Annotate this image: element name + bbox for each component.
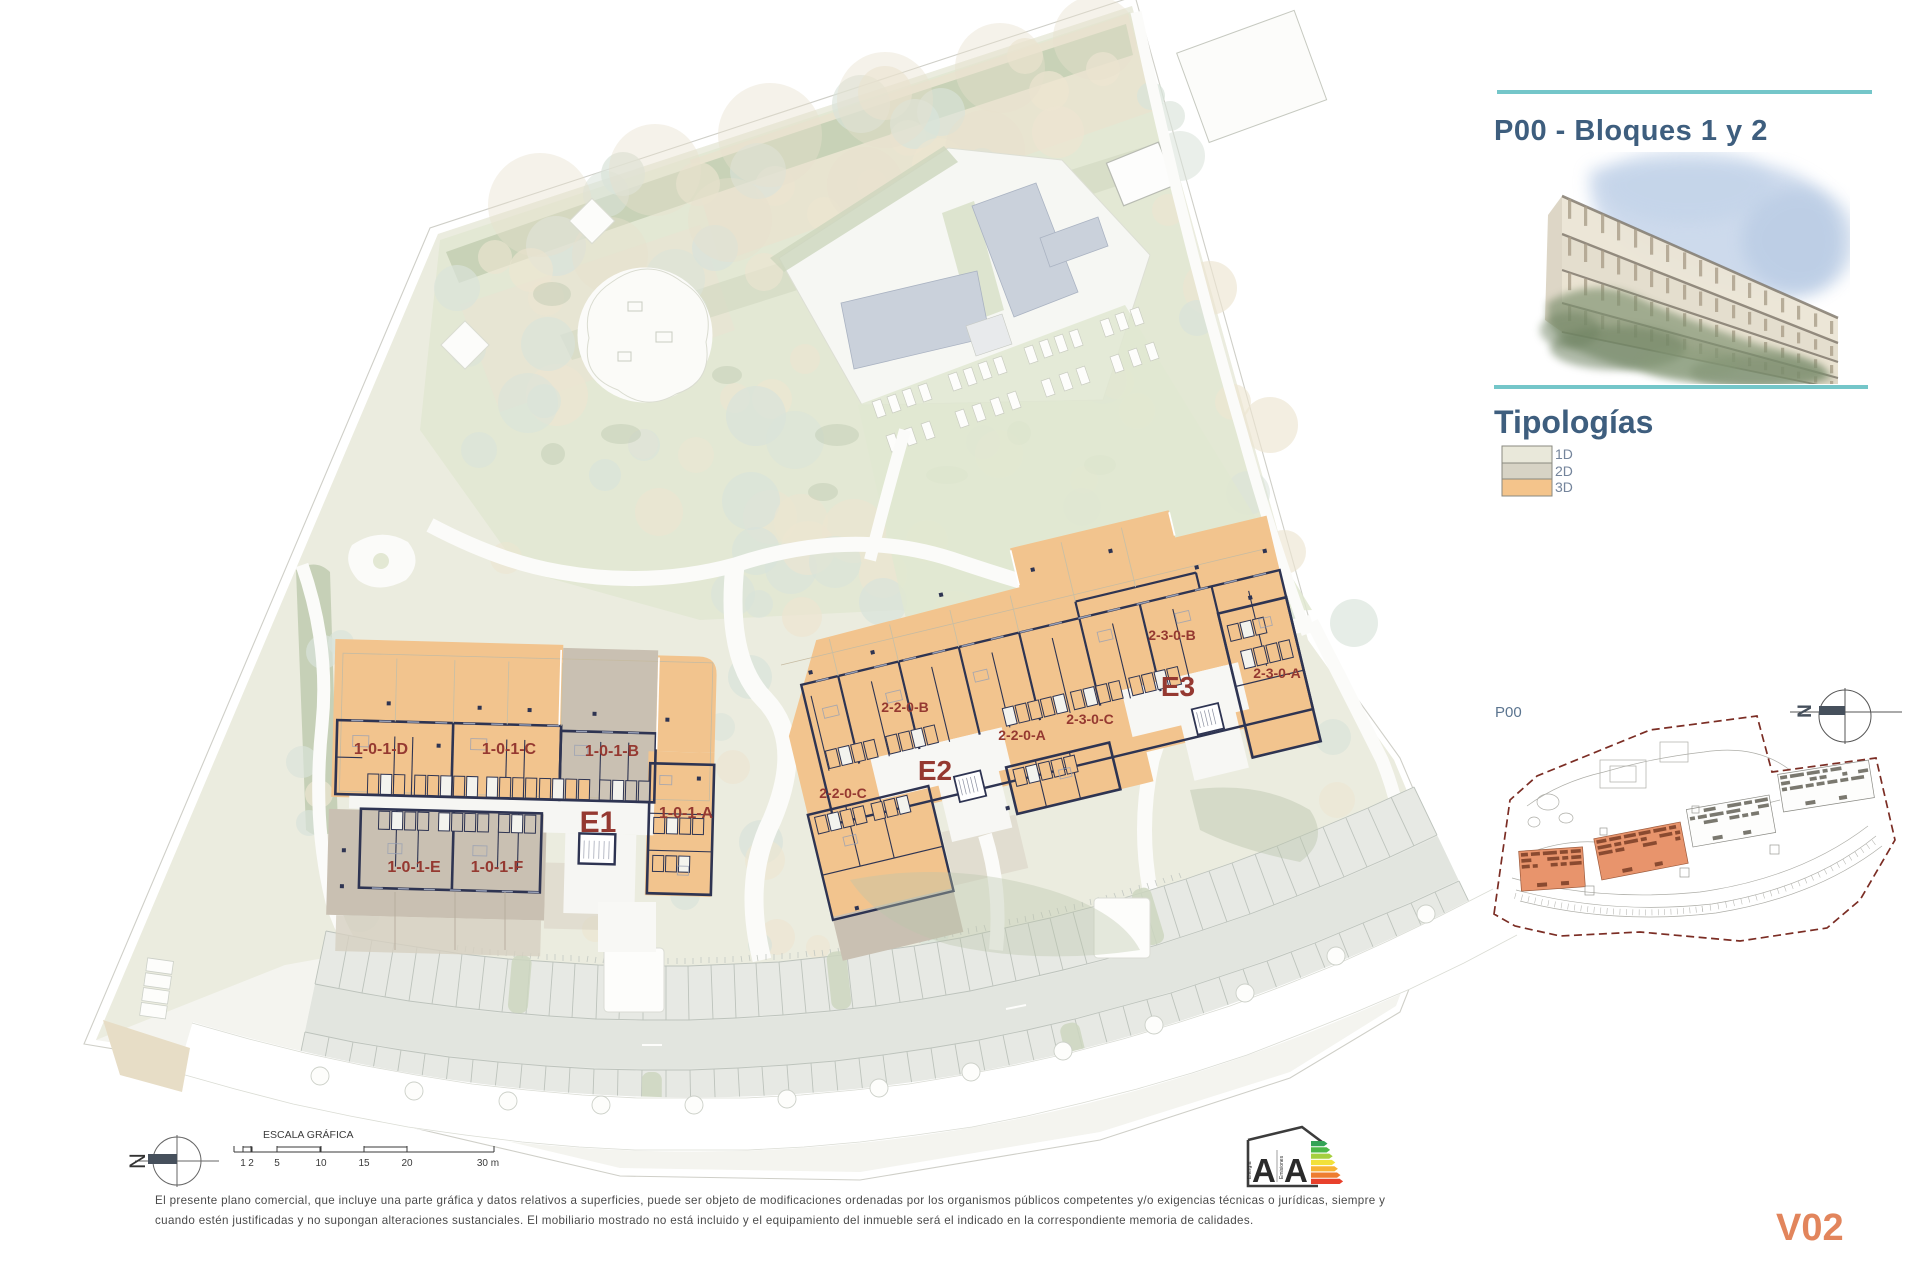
svg-text:1-0-1-C: 1-0-1-C xyxy=(482,741,537,758)
svg-text:15: 15 xyxy=(358,1158,370,1169)
svg-text:E3: E3 xyxy=(1161,671,1195,702)
svg-text:cuando estén justificadas y no: cuando estén justificadas y no supongan … xyxy=(155,1214,1254,1227)
svg-text:A: A xyxy=(1284,1152,1308,1189)
svg-text:30 m: 30 m xyxy=(477,1158,499,1169)
svg-text:Energía: Energía xyxy=(1247,1161,1253,1179)
svg-text:2-3-0-C: 2-3-0-C xyxy=(1066,711,1113,727)
svg-text:5: 5 xyxy=(274,1158,280,1169)
svg-text:V02: V02 xyxy=(1776,1207,1844,1249)
svg-text:2-3-0-A: 2-3-0-A xyxy=(1253,665,1300,681)
svg-text:1-0-1-E: 1-0-1-E xyxy=(387,859,441,876)
svg-text:1D: 1D xyxy=(1555,446,1573,462)
svg-text:10: 10 xyxy=(315,1158,327,1169)
svg-text:El presente plano comercial, q: El presente plano comercial, que incluye… xyxy=(155,1194,1385,1207)
svg-text:2: 2 xyxy=(248,1158,254,1169)
svg-text:Emisiones: Emisiones xyxy=(1279,1155,1285,1179)
svg-text:2-2-0-C: 2-2-0-C xyxy=(819,785,866,801)
svg-text:Tipologías: Tipologías xyxy=(1494,404,1653,440)
svg-text:3D: 3D xyxy=(1555,479,1573,495)
svg-text:2D: 2D xyxy=(1555,463,1573,479)
svg-text:2-2-0-B: 2-2-0-B xyxy=(881,699,928,715)
svg-text:2-2-0-A: 2-2-0-A xyxy=(998,727,1045,743)
svg-text:E2: E2 xyxy=(918,755,952,786)
svg-text:P00: P00 xyxy=(1495,704,1522,721)
svg-text:N: N xyxy=(1795,704,1816,718)
svg-text:P00 - Bloques 1 y 2: P00 - Bloques 1 y 2 xyxy=(1494,115,1768,147)
svg-text:ESCALA GRÁFICA: ESCALA GRÁFICA xyxy=(263,1128,353,1141)
svg-text:2-3-0-B: 2-3-0-B xyxy=(1148,627,1195,643)
svg-text:1-0-1-B: 1-0-1-B xyxy=(585,743,639,760)
svg-text:N: N xyxy=(125,1153,150,1169)
svg-text:1-0-1-D: 1-0-1-D xyxy=(354,741,408,758)
svg-text:E1: E1 xyxy=(580,806,617,839)
svg-text:1-0-1-A: 1-0-1-A xyxy=(659,805,714,822)
svg-text:A: A xyxy=(1252,1152,1276,1189)
svg-text:20: 20 xyxy=(401,1158,413,1169)
svg-text:1: 1 xyxy=(240,1158,246,1169)
svg-text:1-0-1-F: 1-0-1-F xyxy=(471,859,524,876)
